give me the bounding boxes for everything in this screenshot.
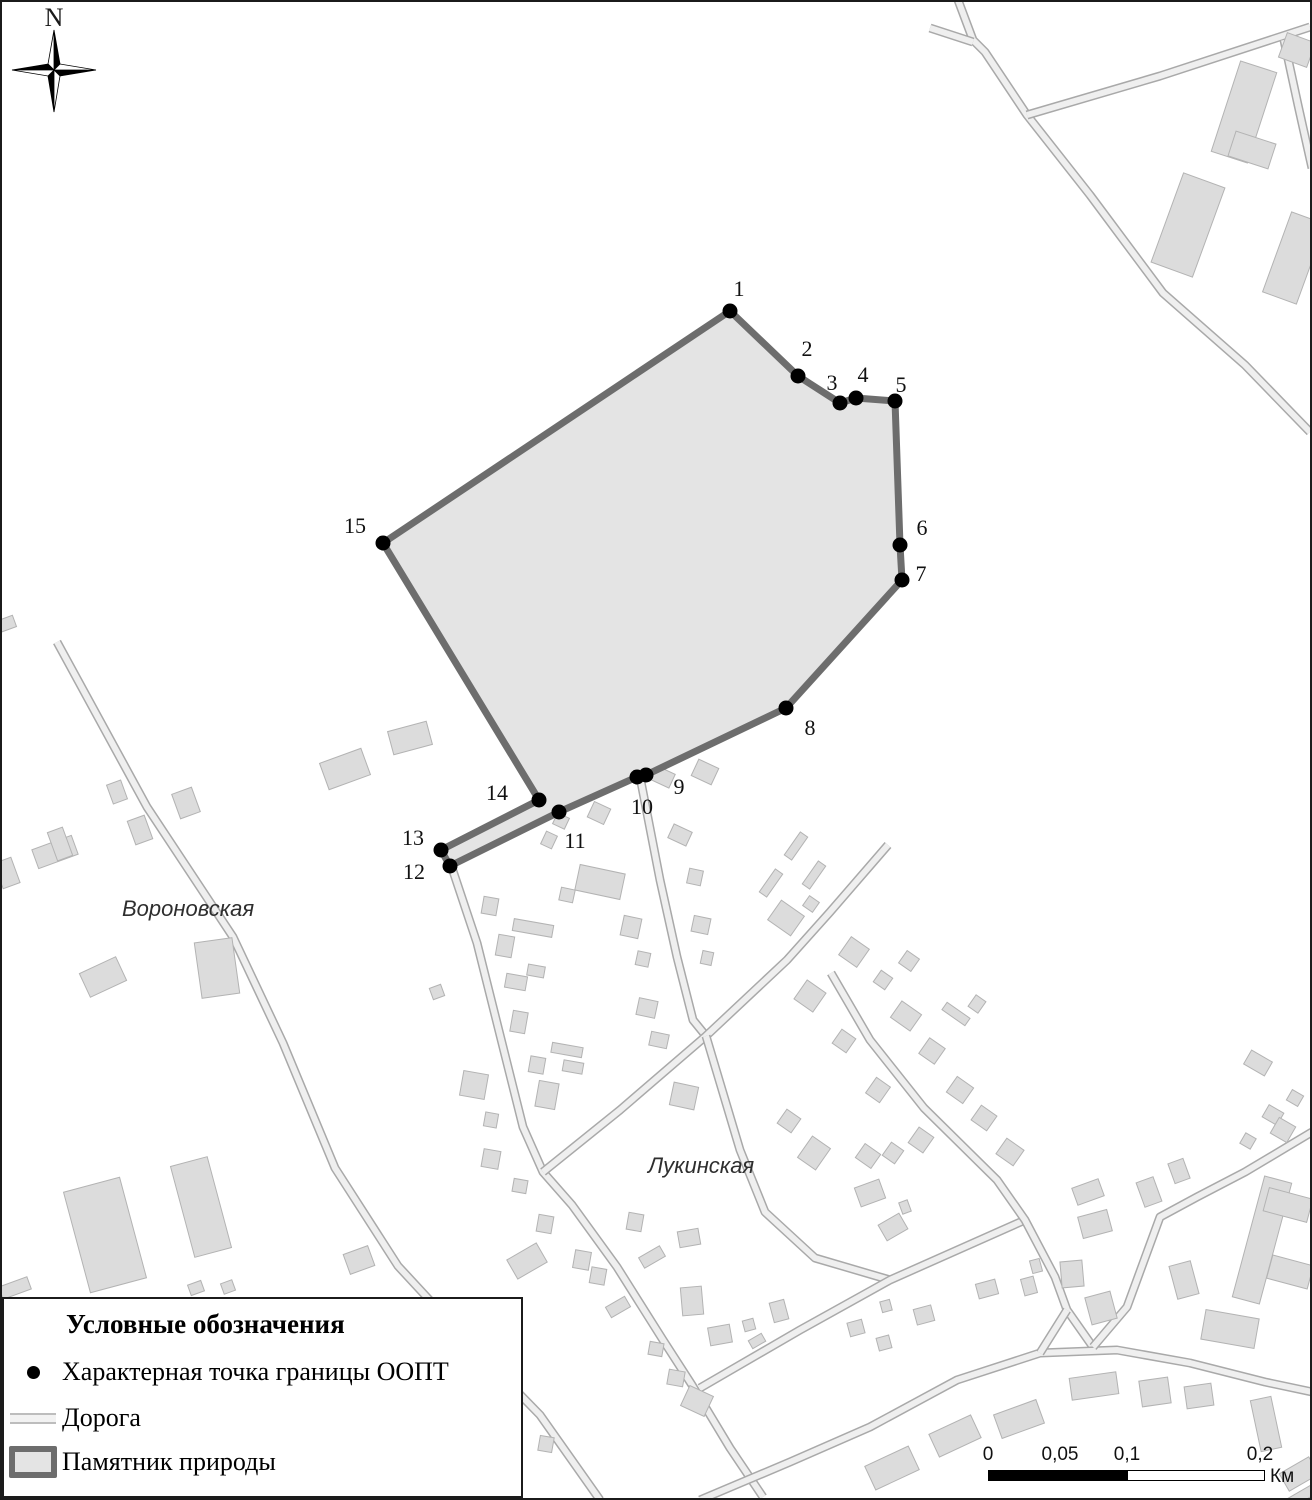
scale-tick-label: 0,1 [1114, 1444, 1140, 1466]
building [908, 1127, 934, 1153]
road-line-icon [10, 1413, 56, 1424]
building [994, 1400, 1045, 1439]
building [320, 748, 371, 789]
building [768, 900, 805, 936]
boundary-point-number: 3 [827, 370, 838, 395]
building [551, 1042, 583, 1057]
building [481, 1149, 501, 1170]
building [507, 1243, 547, 1279]
boundary-point-dot [833, 396, 848, 411]
building [913, 1305, 935, 1325]
building [878, 1213, 908, 1241]
building [504, 973, 527, 990]
boundary-point-dot [849, 391, 864, 406]
building [996, 1138, 1024, 1166]
building [854, 1179, 885, 1207]
building [1286, 1090, 1303, 1107]
scale-tick-label: 0,2 [1247, 1444, 1273, 1466]
building [1029, 1258, 1042, 1273]
boundary-point-dot [552, 805, 567, 820]
building [541, 831, 558, 849]
building [942, 1002, 970, 1025]
building [512, 919, 553, 938]
boundary-point-dot [895, 573, 910, 588]
boundary-point-dot [443, 859, 458, 874]
building [700, 950, 713, 965]
legend-title: Условные обозначения [66, 1309, 345, 1340]
boundary-point-number: 15 [344, 513, 366, 538]
road-symbol [4, 1413, 62, 1424]
boundary-point-dot [630, 770, 645, 785]
building [1184, 1383, 1214, 1409]
building [535, 1080, 559, 1109]
compass-rose-icon: N [12, 3, 96, 112]
building [855, 1144, 880, 1169]
scale-bar-rule [988, 1470, 1265, 1481]
scale-bar: 00,050,10,2 Км [988, 1444, 1308, 1490]
nature-monument-symbol [4, 1446, 62, 1478]
building [1201, 1310, 1259, 1349]
building [847, 1319, 865, 1336]
building [1085, 1291, 1117, 1325]
building [605, 1296, 630, 1317]
boundary-point-number: 12 [403, 859, 425, 884]
building [1072, 1179, 1104, 1205]
building [968, 995, 986, 1013]
building [429, 984, 444, 999]
building [769, 1299, 789, 1322]
building [639, 1246, 666, 1268]
building [170, 1157, 231, 1258]
building [899, 951, 920, 972]
building [483, 1112, 498, 1128]
building [777, 1109, 801, 1133]
building [107, 780, 128, 804]
building [64, 1177, 147, 1292]
building [899, 1200, 912, 1214]
building [460, 1071, 489, 1100]
building [687, 868, 704, 886]
building [971, 1105, 997, 1131]
boundary-point-dot [376, 536, 391, 551]
building [1136, 1177, 1162, 1208]
building [708, 1324, 733, 1346]
building [188, 1280, 205, 1295]
building [759, 869, 782, 897]
legend-item-label: Памятник природы [62, 1447, 276, 1477]
building [882, 1142, 903, 1164]
building [0, 1277, 31, 1299]
building [876, 1335, 892, 1351]
building [691, 759, 719, 785]
building [343, 1246, 375, 1275]
building [680, 1286, 703, 1316]
building [832, 1029, 856, 1053]
boundary-point-dot [532, 793, 547, 808]
road-casing [1093, 1132, 1312, 1347]
boundary-point-dot [779, 701, 794, 716]
building [667, 1369, 685, 1387]
building [528, 1056, 546, 1074]
area-swatch-icon [9, 1446, 57, 1478]
building [784, 832, 807, 860]
boundary-point-dot [434, 843, 449, 858]
building [172, 787, 201, 819]
boundary-point-dot [893, 538, 908, 553]
road-casing [958, 0, 1310, 432]
building [677, 1228, 700, 1247]
building [865, 1446, 919, 1490]
building [929, 1415, 981, 1457]
building [635, 951, 651, 967]
building [1228, 131, 1276, 169]
scale-tick-label: 0,05 [1042, 1444, 1079, 1466]
building [839, 937, 870, 968]
building [1240, 1133, 1256, 1149]
building [1151, 173, 1225, 277]
boundary-point-number: 1 [734, 276, 745, 301]
building [1267, 1255, 1312, 1289]
map-canvas: 123456789101112131415 ВороновскаяЛукинск… [0, 0, 1312, 1500]
building [803, 896, 820, 913]
building [626, 1212, 644, 1231]
building [620, 915, 642, 938]
building [648, 1341, 664, 1356]
boundary-point-number: 4 [858, 362, 869, 387]
building [669, 1082, 698, 1110]
boundary-point-number: 14 [486, 780, 508, 805]
street-label: Лукинская [646, 1153, 754, 1178]
building [794, 980, 826, 1012]
legend-item-road: Дорога [4, 1401, 521, 1435]
building [1169, 1261, 1199, 1300]
building [866, 1077, 891, 1102]
building [388, 721, 433, 755]
boundary-point-number: 6 [917, 515, 928, 540]
building [919, 1038, 945, 1064]
building [636, 998, 658, 1019]
boundary-point-number: 13 [402, 825, 424, 850]
boundary-point-number: 8 [805, 715, 816, 740]
building [691, 915, 711, 934]
building [1021, 1276, 1038, 1296]
building [0, 615, 17, 632]
building [194, 938, 239, 999]
building [587, 801, 610, 824]
building [1168, 1158, 1190, 1183]
boundary-point-symbol [4, 1366, 62, 1379]
building [220, 1280, 235, 1294]
street-label: Вороновская [122, 896, 254, 921]
road [1040, 1310, 1067, 1353]
building [742, 1318, 755, 1331]
building [880, 1299, 893, 1312]
boundary-point-dot [723, 304, 738, 319]
legend-item-boundary-point: Характерная точка границы ООПТ [4, 1355, 521, 1389]
scale-bar-filled-segment [989, 1471, 1128, 1480]
boundary-point-number: 11 [564, 828, 585, 853]
building [1069, 1372, 1119, 1400]
road [958, 0, 1310, 432]
scale-bar-unit: Км [1270, 1466, 1294, 1488]
building [649, 1031, 670, 1048]
building [559, 887, 575, 903]
building [798, 1136, 831, 1170]
boundary-point-number: 9 [674, 774, 685, 799]
compass-north-label: N [45, 3, 64, 32]
building [510, 1010, 528, 1033]
building [589, 1267, 607, 1285]
legend-item-label: Характерная точка границы ООПТ [62, 1357, 449, 1387]
building [1060, 1260, 1084, 1288]
building [1139, 1377, 1171, 1407]
building [975, 1279, 998, 1299]
building [1263, 212, 1312, 304]
building [562, 1060, 584, 1074]
point-dot-icon [27, 1366, 40, 1379]
boundary-point-dot [791, 369, 806, 384]
legend-item-nature-monument: Памятник природы [4, 1445, 521, 1479]
legend-panel: Условные обозначения Характерная точка г… [2, 1297, 523, 1498]
map-page: 123456789101112131415 ВороновскаяЛукинск… [0, 0, 1312, 1500]
building [575, 865, 625, 900]
building [873, 970, 892, 989]
building [127, 815, 152, 845]
building [512, 1178, 528, 1193]
building [573, 1250, 592, 1271]
boundary-point-number: 2 [802, 336, 813, 361]
building [495, 934, 514, 957]
building [79, 957, 126, 997]
scale-tick-label: 0 [983, 1444, 994, 1466]
building [802, 861, 825, 889]
boundary-point-number: 10 [631, 794, 653, 819]
boundary-point-number: 5 [896, 372, 907, 397]
building [0, 857, 20, 889]
building [481, 896, 499, 915]
building [527, 964, 546, 978]
road [641, 782, 706, 1036]
building [1244, 1050, 1273, 1076]
building [890, 1001, 921, 1031]
building [536, 1214, 554, 1233]
boundary-point-number: 7 [916, 561, 927, 586]
building [946, 1076, 973, 1103]
building [1078, 1209, 1113, 1238]
building [538, 1435, 554, 1452]
building [668, 824, 692, 846]
legend-item-label: Дорога [62, 1403, 141, 1433]
